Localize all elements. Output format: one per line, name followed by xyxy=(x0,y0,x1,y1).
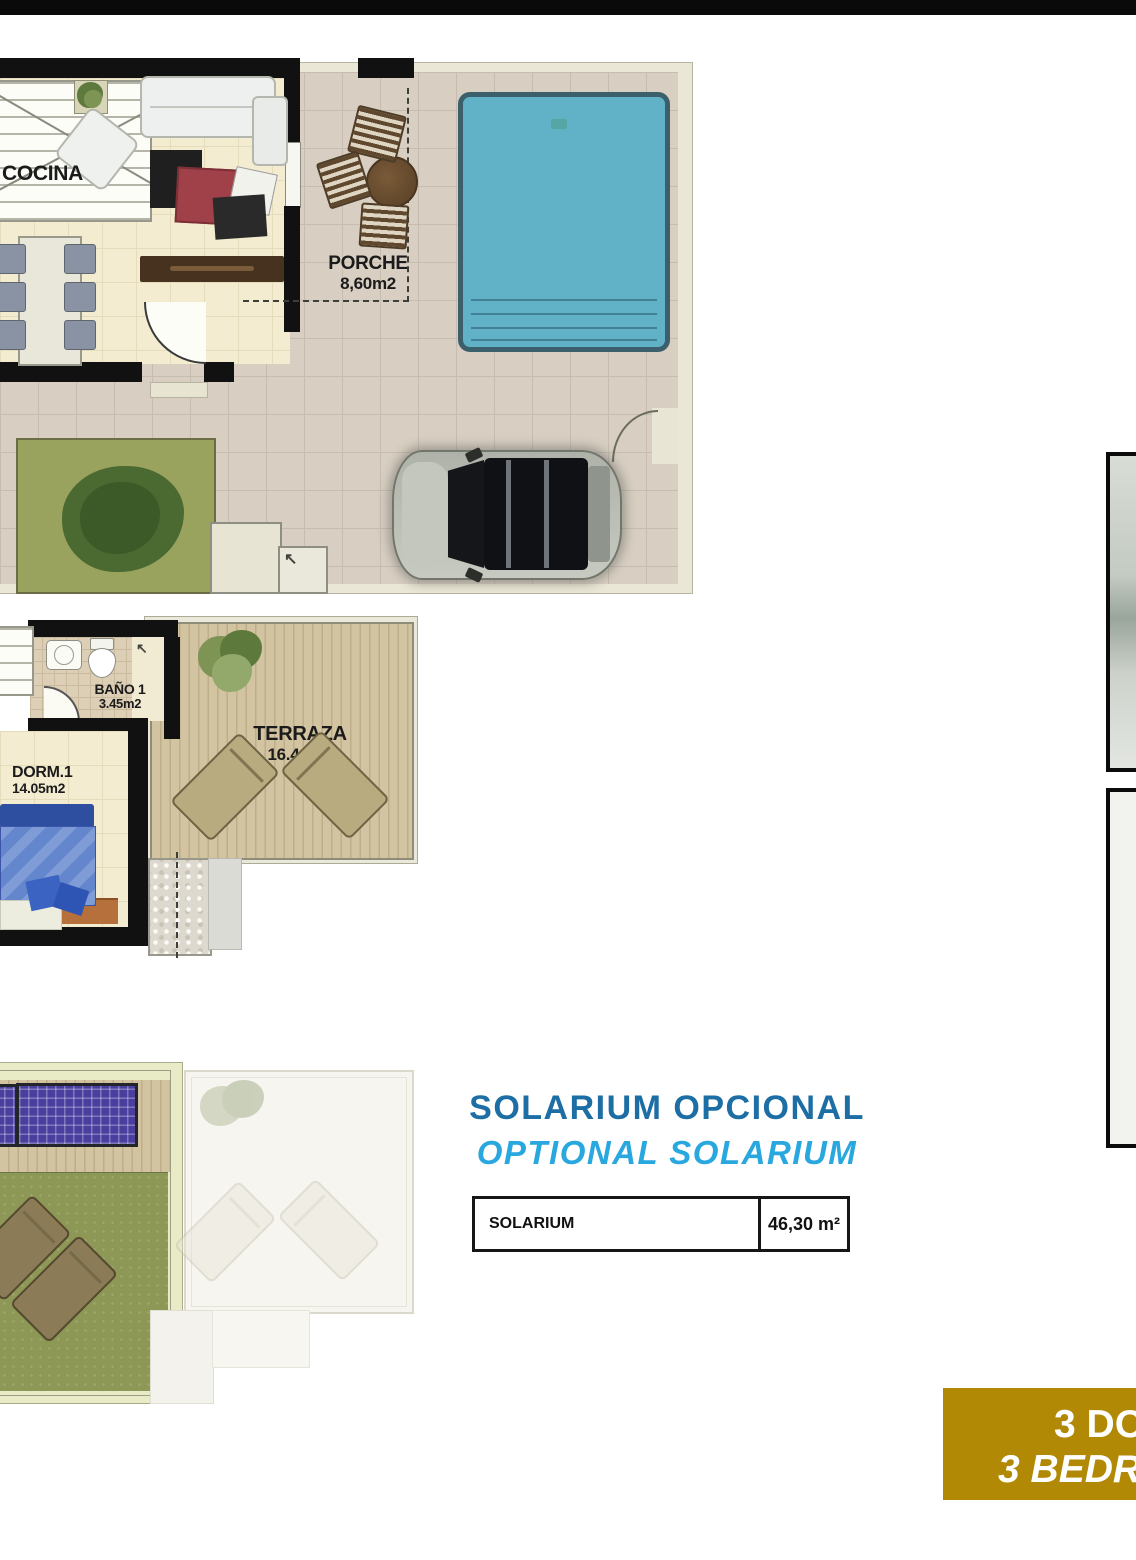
pool-step xyxy=(471,339,657,342)
wall-top-pillar xyxy=(358,58,414,78)
solarium-plan xyxy=(0,1050,430,1420)
boundary-dashed-line xyxy=(176,852,178,958)
entry-arrow-icon: ↖ xyxy=(136,641,148,655)
entry-arrow-icon: ↖ xyxy=(284,552,297,568)
brochure-page: COCINA PORCHE 8,60m2 ↖ xyxy=(0,0,1136,1560)
photo-card xyxy=(1106,788,1136,1148)
side-area xyxy=(208,858,242,950)
bed xyxy=(0,804,94,928)
cocina-label: COCINA xyxy=(2,163,83,186)
ghost-structure xyxy=(212,1310,310,1368)
entry-step xyxy=(150,382,208,398)
pool-ladder-icon xyxy=(551,119,567,129)
photo-card xyxy=(1106,452,1136,772)
pool-step xyxy=(471,299,657,302)
solar-panel-icon xyxy=(16,1083,138,1147)
pool-step xyxy=(471,313,657,316)
dining-chair xyxy=(0,282,26,312)
dorm-area: 14.05m2 xyxy=(12,781,72,796)
porch-chair xyxy=(359,202,410,249)
porch-table xyxy=(366,156,418,208)
swimming-pool xyxy=(458,92,670,352)
dorm-name: DORM.1 xyxy=(12,764,72,781)
wall-corner xyxy=(126,718,148,744)
solarium-title-es: SOLARIUM OPCIONAL xyxy=(466,1089,868,1128)
solarium-title-block: SOLARIUM OPCIONAL OPTIONAL SOLARIUM SOLA… xyxy=(466,1085,868,1255)
wall-bath-bottom xyxy=(28,718,132,731)
toilet-icon xyxy=(86,638,116,678)
bano-label: BAÑO 1 3.45m2 xyxy=(84,682,156,711)
entry-steps xyxy=(210,522,282,594)
plant-icon xyxy=(196,628,266,696)
wall-bath-right xyxy=(164,637,180,739)
dining-chair xyxy=(0,320,26,350)
sink-icon xyxy=(46,640,82,670)
first-floor-plan: TERRAZA 16.40m2 ↖ BAÑO 1 3.45m2 xyxy=(0,610,430,970)
dining-chair xyxy=(0,244,26,274)
banner-line1: 3 DO xyxy=(1054,1403,1136,1447)
entry-steps-small: ↖ xyxy=(278,546,328,594)
ground-floor-plan: COCINA PORCHE 8,60m2 ↖ xyxy=(0,0,700,600)
solarium-title-en: OPTIONAL SOLARIUM xyxy=(466,1134,868,1172)
ghost-structure xyxy=(150,1310,214,1404)
garden-grass xyxy=(16,438,216,594)
tv-cabinet xyxy=(140,256,284,282)
car-top-view-icon xyxy=(392,450,622,580)
coffee-table xyxy=(146,146,266,242)
dining-chair xyxy=(64,282,96,312)
dining-chair xyxy=(64,320,96,350)
porch-dashed-line-h xyxy=(243,300,409,302)
bano-name: BAÑO 1 xyxy=(84,682,156,697)
ghost-plant-icon xyxy=(198,1078,268,1144)
wall-right-lower xyxy=(284,206,300,332)
pebble-patch xyxy=(148,858,212,956)
stairs-icon xyxy=(0,626,34,696)
dining-chair xyxy=(64,244,96,274)
wall-bath-top xyxy=(28,620,178,637)
wall-bedroom-right xyxy=(128,742,148,932)
pool-step xyxy=(471,327,657,330)
bano-area: 3.45m2 xyxy=(84,697,156,711)
solarium-table-label: SOLARIUM xyxy=(475,1199,758,1249)
solarium-area-table: SOLARIUM 46,30 m² xyxy=(472,1196,850,1252)
banner-line2: 3 BEDR xyxy=(998,1448,1136,1492)
terraza-name: TERRAZA xyxy=(240,724,360,746)
solarium-table-value: 46,30 m² xyxy=(761,1199,847,1249)
dorm-label: DORM.1 14.05m2 xyxy=(12,764,72,796)
wall-bottom-b xyxy=(204,362,234,382)
wall-top-left xyxy=(0,58,288,78)
